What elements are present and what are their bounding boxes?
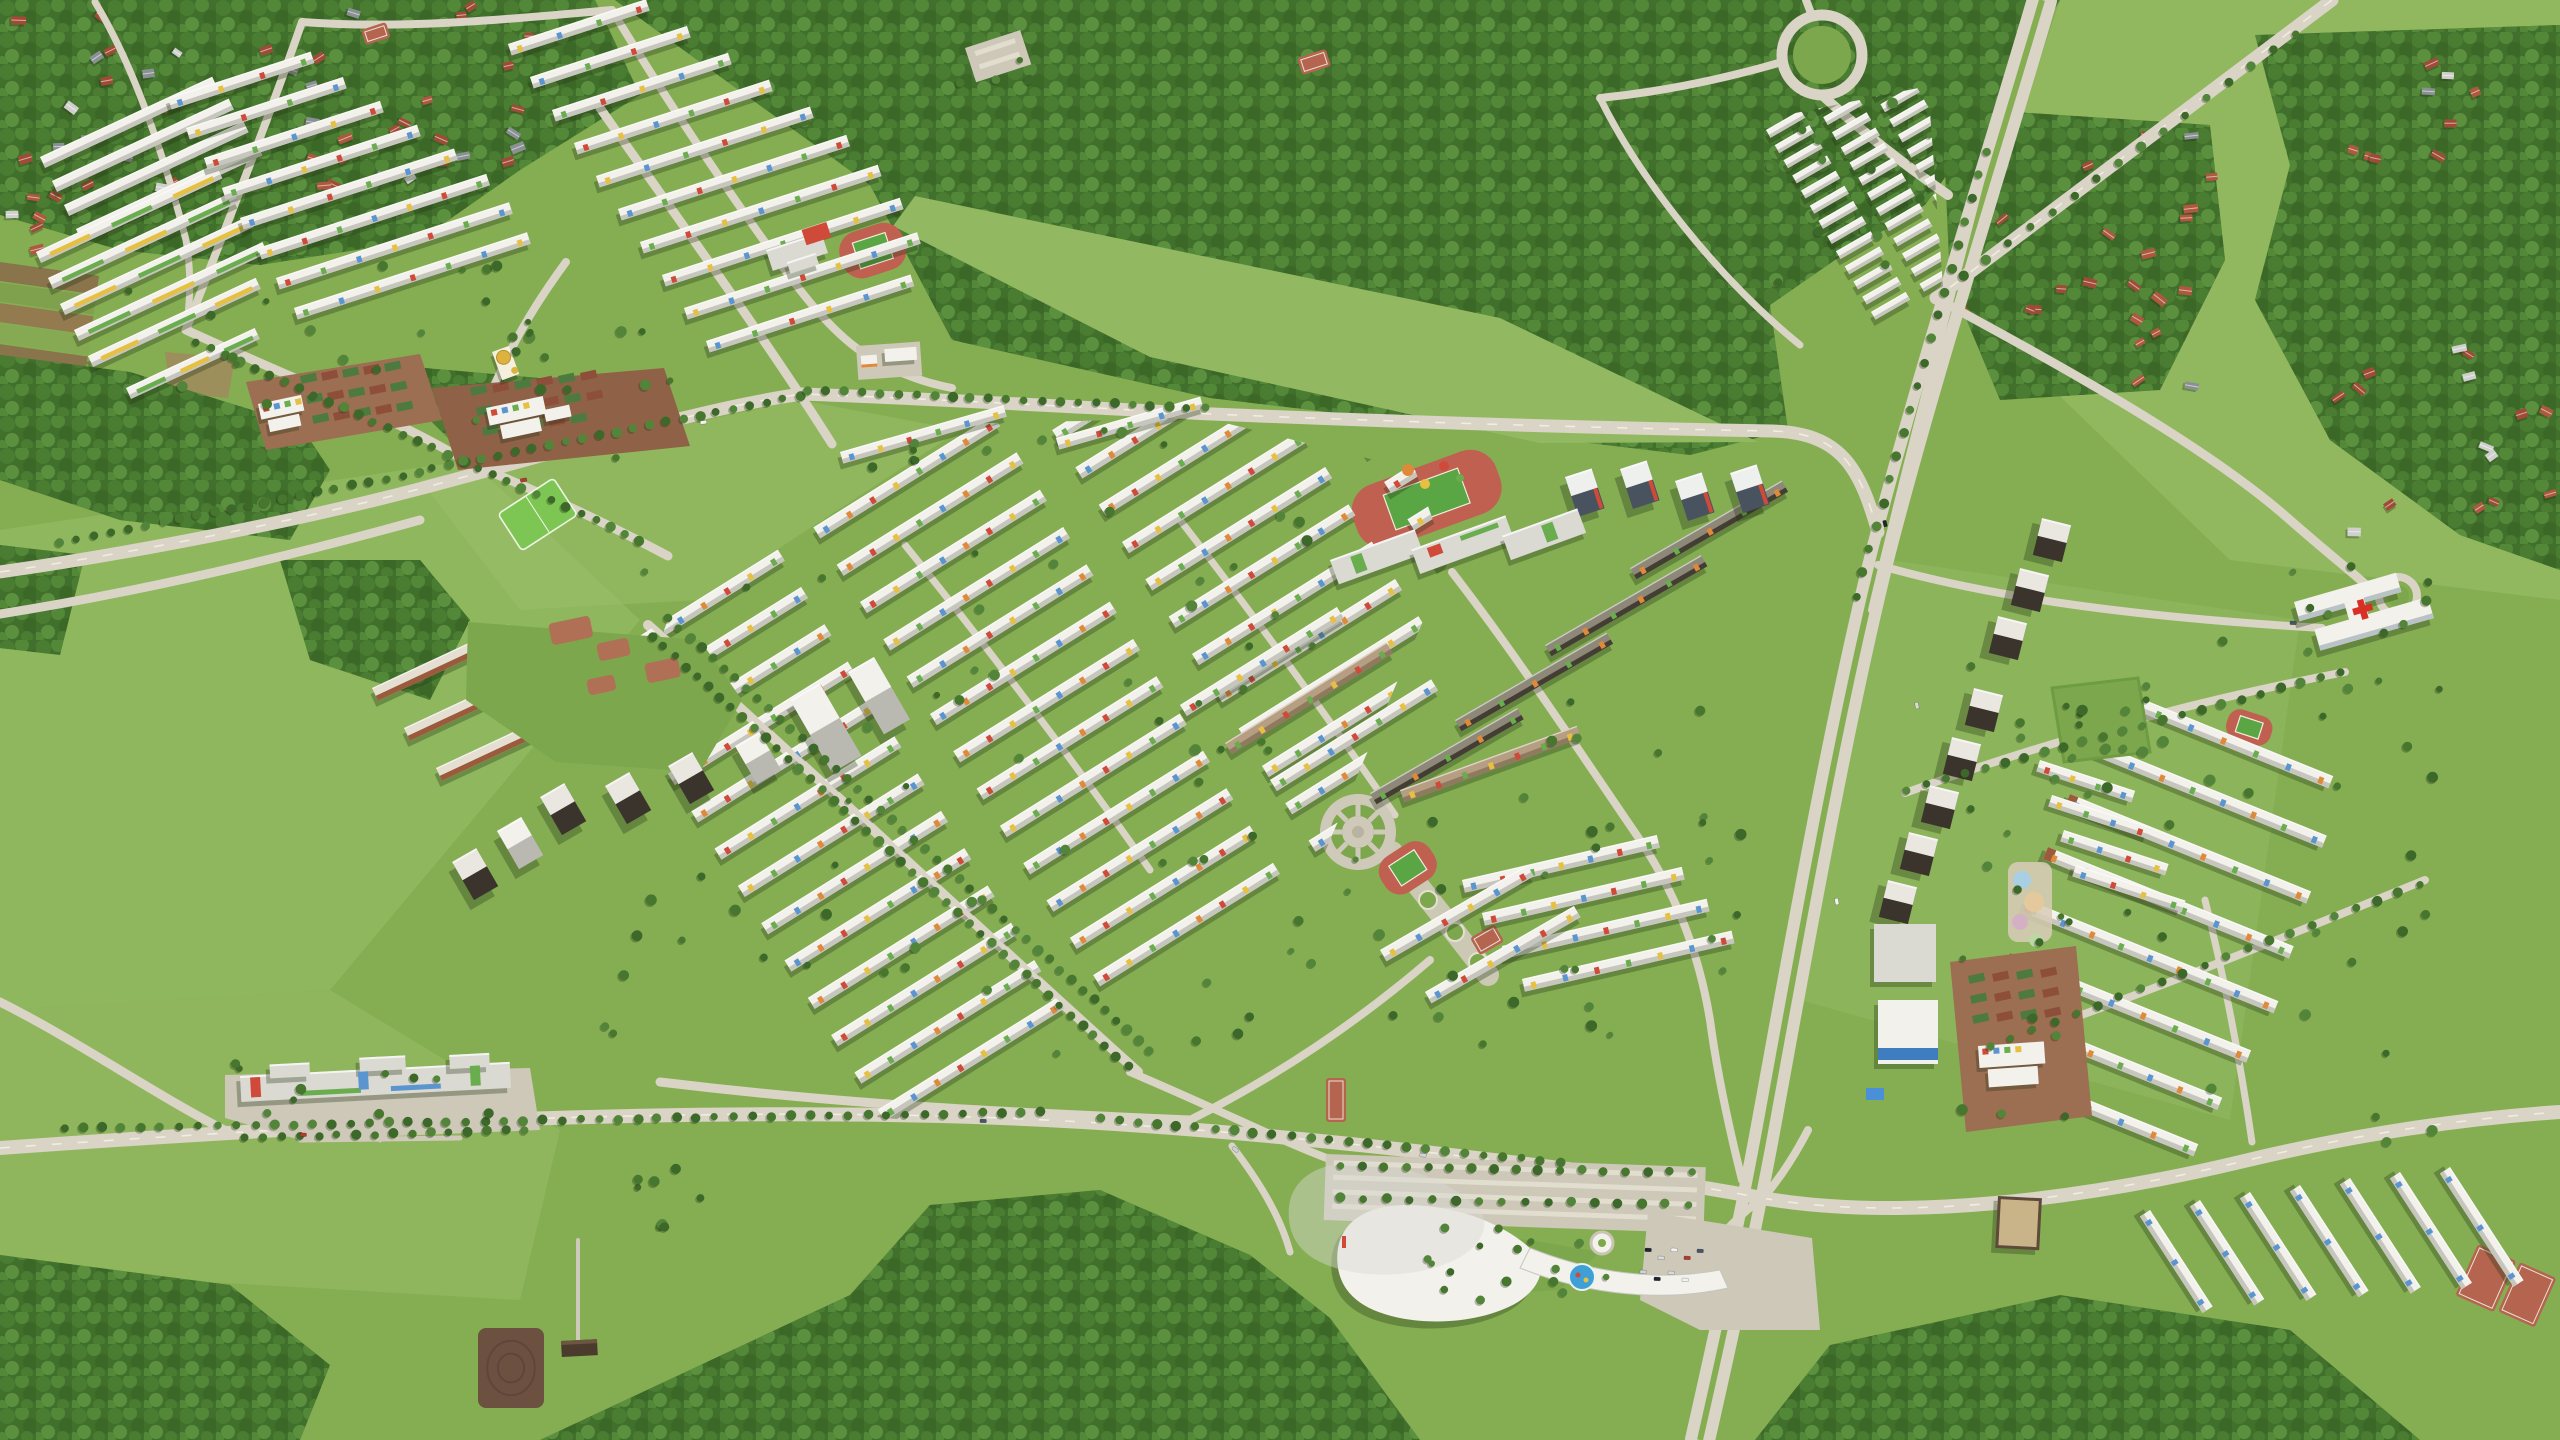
house <box>2181 204 2199 216</box>
playground <box>1439 461 1449 471</box>
kindergarten-east <box>1950 946 2092 1132</box>
playground <box>1402 464 1414 476</box>
car <box>1668 1271 1675 1275</box>
house <box>2345 528 2361 539</box>
car <box>300 1133 307 1137</box>
car <box>1697 1249 1704 1253</box>
house <box>9 16 26 27</box>
car <box>1420 1153 1427 1157</box>
roundabout-north <box>1782 15 1862 95</box>
house <box>140 68 155 80</box>
car <box>1658 1256 1665 1260</box>
gas-station <box>856 342 922 380</box>
house <box>2182 132 2199 142</box>
court-small <box>1326 1078 1346 1122</box>
car <box>1671 1248 1678 1252</box>
field-shed <box>561 1339 598 1357</box>
playground <box>1456 474 1464 482</box>
car <box>1684 1256 1691 1260</box>
car <box>700 420 707 424</box>
car <box>1654 1277 1661 1281</box>
masterplan-svg <box>0 0 2560 1440</box>
car <box>1834 898 1839 905</box>
car <box>1682 1278 1689 1282</box>
house <box>4 211 19 221</box>
masterplan-render: Aerial masterplan render <box>0 0 2560 1440</box>
house <box>2442 119 2456 129</box>
playground <box>1420 479 1430 489</box>
car <box>1640 1270 1647 1274</box>
house <box>2178 214 2193 224</box>
plowed-patch <box>478 1328 544 1408</box>
house <box>2204 173 2218 184</box>
playground-pastel <box>2008 862 2052 947</box>
car <box>1645 1248 1652 1252</box>
car <box>2290 621 2297 625</box>
brown-building <box>1991 1196 2042 1255</box>
car <box>980 1119 987 1123</box>
